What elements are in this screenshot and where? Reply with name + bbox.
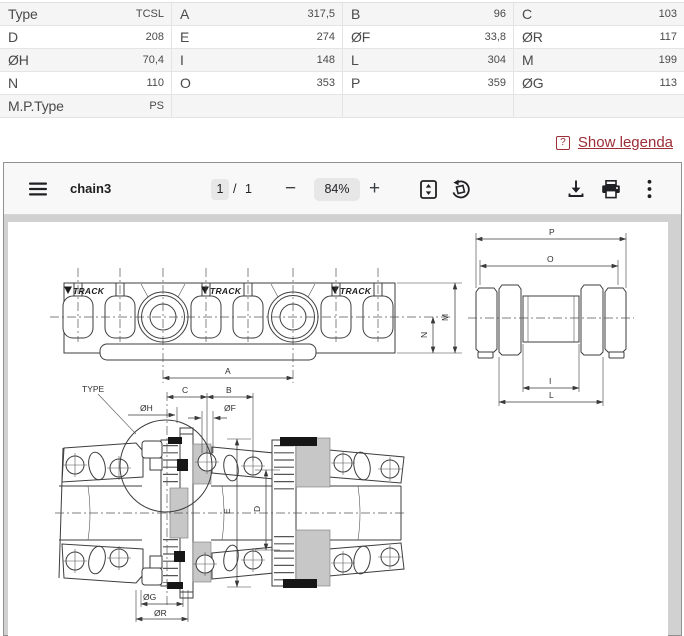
param-value: 274 [317,31,342,43]
param-value: 304 [488,54,513,66]
table-cell: D208 [0,26,171,49]
dim-label-or: ØR [154,608,167,618]
param-value: 70,4 [143,54,171,66]
end-view: P O I L [468,227,634,406]
param-label: L [343,52,488,68]
brand-logo: TRACK TRACK TRACK [64,286,372,296]
table-cell: ØF33,8 [342,26,513,49]
rotate-ccw-icon [450,179,471,200]
param-label: Type [0,6,136,22]
parameter-table: TypeTCSL A317,5 B96 C103 D208 E274 ØF33,… [0,2,684,118]
pdf-page: TRACK TRACK TRACK A [8,222,668,636]
table-cell: ØG113 [513,72,684,95]
menu-button[interactable] [27,178,49,200]
table-cell: ØR117 [513,26,684,49]
param-label: ØF [343,29,485,45]
download-button[interactable] [565,178,587,200]
param-value: 117 [659,31,684,43]
table-cell: P359 [342,72,513,95]
param-value: 103 [659,8,684,20]
dim-label-og: ØG [143,592,156,602]
help-icon: ? [556,136,570,150]
pdf-viewer: chain3 1 / 1 − 84% + [3,162,682,636]
param-label: O [172,75,317,91]
param-value: 33,8 [485,31,513,43]
table-cell [513,95,684,118]
fit-page-icon [419,179,438,200]
table-cell [171,95,342,118]
show-legenda-label: Show legenda [578,134,673,151]
zoom-level: 84% [314,178,360,201]
table-cell: ØH70,4 [0,49,171,72]
param-label: ØR [514,29,659,45]
param-value: 199 [659,54,684,66]
dim-label-i: I [549,376,551,386]
dim-label-l: L [549,390,554,400]
hamburger-icon [29,182,47,196]
param-label: C [514,6,659,22]
plan-view: TYPE C B ØH ØF [55,384,405,622]
kebab-menu-icon [647,179,652,199]
page-separator: / [233,163,236,215]
pdf-toolbar: chain3 1 / 1 − 84% + [4,163,681,215]
param-label: E [172,29,317,45]
type-callout-label: TYPE [82,384,105,394]
param-value: 208 [146,31,171,43]
param-value: 148 [317,54,342,66]
page-number-input[interactable]: 1 [211,179,229,200]
param-label: M.P.Type [0,98,149,114]
brand-logo-text: TRACK [210,286,242,296]
pin-hub [272,437,330,588]
zoom-out-button[interactable]: − [285,163,296,215]
dim-label-d: D [252,506,262,512]
dim-label-b: B [226,385,232,395]
dim-label-e: E [222,508,232,514]
table-cell [342,95,513,118]
dim-label-of: ØF [224,403,236,413]
param-label: ØH [0,52,143,68]
param-label: M [514,52,659,68]
document-title: chain3 [70,163,111,215]
table-cell: E274 [171,26,342,49]
table-cell: C103 [513,3,684,26]
technical-drawing: TRACK TRACK TRACK A [8,222,668,636]
param-label: N [0,75,146,91]
param-value: 113 [659,77,684,89]
param-value: 110 [146,77,171,89]
param-value: PS [149,100,171,112]
table-cell: A317,5 [171,3,342,26]
param-value: 317,5 [307,8,342,20]
side-view: TRACK TRACK TRACK A [50,268,462,383]
dim-label-c: C [182,385,188,395]
fit-page-button[interactable] [417,178,439,200]
dim-label-oh: ØH [140,403,153,413]
param-label: A [172,6,307,22]
dim-label-p: P [549,227,555,237]
param-value: 96 [494,8,513,20]
dim-label-a: A [225,366,231,376]
print-icon [601,180,621,199]
table-cell: M199 [513,49,684,72]
dim-label-m: M [440,314,450,321]
param-label: ØG [514,75,659,91]
table-cell: M.P.TypePS [0,95,171,118]
zoom-in-button[interactable]: + [369,163,380,215]
param-label: B [343,6,494,22]
brand-logo-text: TRACK [340,286,372,296]
param-label: I [172,52,317,68]
param-value: 359 [488,77,513,89]
table-cell: TypeTCSL [0,3,171,26]
page-total: 1 [245,163,252,215]
table-cell: L304 [342,49,513,72]
dim-label-o: O [547,254,554,264]
param-value: TCSL [136,8,171,20]
table-cell: O353 [171,72,342,95]
rotate-button[interactable] [449,178,471,200]
table-cell: N110 [0,72,171,95]
show-legenda-link[interactable]: ? Show legenda [556,134,673,151]
more-options-button[interactable] [638,178,660,200]
param-label: P [343,75,488,91]
print-button[interactable] [600,178,622,200]
param-value: 353 [317,77,342,89]
download-icon [567,179,585,199]
param-label: D [0,29,146,45]
dim-label-n: N [419,332,429,338]
table-cell: B96 [342,3,513,26]
table-cell: I148 [171,49,342,72]
